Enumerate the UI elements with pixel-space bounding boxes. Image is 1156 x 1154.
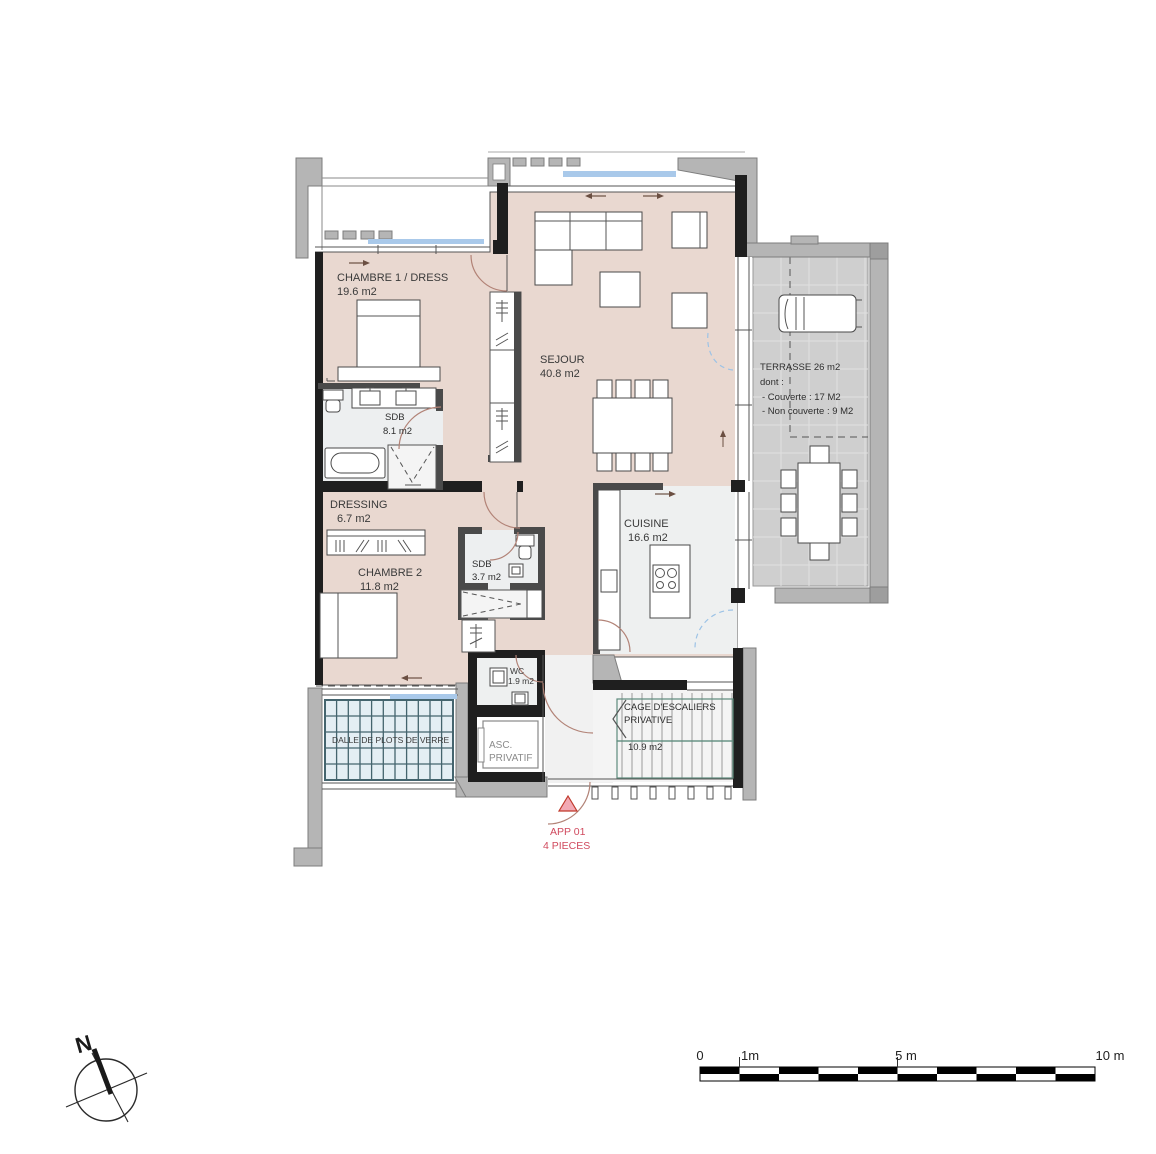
compass: N bbox=[66, 1030, 147, 1122]
cooktop bbox=[653, 565, 679, 592]
ascenseur-label-2: PRIVATIF bbox=[489, 753, 533, 764]
chambre1-glazing bbox=[368, 239, 484, 244]
balcony2-glazing bbox=[390, 694, 457, 699]
sejour-label: SEJOUR bbox=[540, 354, 585, 366]
compass-north-label: N bbox=[73, 1030, 95, 1058]
stair-wall-right bbox=[743, 648, 756, 800]
cage-area: 10.9 m2 bbox=[628, 742, 662, 753]
toilet-tank bbox=[516, 535, 534, 546]
dressing-label: DRESSING bbox=[330, 499, 387, 511]
chambre1-label: CHAMBRE 1 / DRESS bbox=[337, 272, 448, 284]
apartment-id: APP 01 bbox=[550, 826, 586, 838]
toilet-tank bbox=[323, 390, 343, 400]
toilet-bowl bbox=[326, 400, 340, 412]
floor-plan: APP 01 4 PIECES CHAMBRE 1 / DRESS 19.6 m… bbox=[0, 0, 1156, 1154]
scale-tick-0: 0 bbox=[696, 1048, 703, 1063]
cuisine-label: CUISINE bbox=[624, 518, 669, 530]
kitchen-island bbox=[650, 545, 690, 618]
terrasse-couverte: - Couverte : 17 M2 bbox=[762, 392, 841, 403]
balcony-pillar bbox=[296, 158, 322, 258]
chambre1-area: 19.6 m2 bbox=[337, 286, 377, 298]
cuisine-area: 16.6 m2 bbox=[628, 532, 668, 544]
wardrobe-strip bbox=[490, 292, 521, 462]
ascenseur-label-1: ASC. bbox=[489, 740, 512, 751]
chambre2-area: 11.8 m2 bbox=[360, 581, 399, 593]
scale-tick-1m: 1m bbox=[741, 1048, 759, 1063]
terrace-wall-right bbox=[870, 243, 888, 603]
tech-closet bbox=[462, 620, 495, 652]
toilet-bowl bbox=[519, 546, 531, 559]
elevator-door bbox=[478, 728, 484, 762]
apartment-type: 4 PIECES bbox=[543, 840, 590, 852]
shower-cabinet bbox=[527, 590, 542, 618]
stair-door-leaf bbox=[593, 655, 622, 683]
sdb1-area: 8.1 m2 bbox=[383, 426, 412, 437]
sofa-chaise bbox=[535, 250, 572, 285]
terrace bbox=[753, 257, 868, 586]
compass-needle-icon bbox=[94, 1049, 111, 1094]
entry-triangle-icon bbox=[559, 796, 577, 811]
bathtub-inner bbox=[331, 453, 379, 473]
sink-2 bbox=[396, 391, 416, 405]
scale-tick-5m: 5 m bbox=[895, 1048, 917, 1063]
floor-plan-svg: APP 01 4 PIECES CHAMBRE 1 / DRESS 19.6 m… bbox=[0, 0, 1156, 1154]
scale-bar: 0 1m 5 m 10 m bbox=[696, 1048, 1124, 1081]
terrasse-dont: dont : bbox=[760, 377, 784, 388]
armchair-1 bbox=[672, 212, 707, 248]
sdb2-area: 3.7 m2 bbox=[472, 572, 501, 583]
sink-1 bbox=[360, 391, 380, 405]
chambre2-bed bbox=[320, 593, 397, 658]
cage-label-2: PRIVATIVE bbox=[624, 715, 672, 726]
dalle-label: DALLE DE PLOTS DE VERRE bbox=[332, 735, 449, 745]
balcony2-wall-foot bbox=[294, 848, 322, 866]
dressing-area: 6.7 m2 bbox=[337, 513, 371, 525]
sdb2-label: SDB bbox=[472, 559, 492, 570]
coffee-table bbox=[600, 272, 640, 307]
terrace-wall-stub bbox=[791, 236, 818, 244]
armchair-2 bbox=[672, 293, 707, 328]
terrasse-label: TERRASSE 26 m2 bbox=[760, 362, 840, 373]
sejour-glazing bbox=[563, 171, 676, 177]
shower-2 bbox=[461, 590, 542, 618]
cage-label-1: CAGE D'ESCALIERS bbox=[624, 702, 716, 713]
scale-tick-10m: 10 m bbox=[1096, 1048, 1125, 1063]
wc-label: WC bbox=[510, 666, 524, 676]
kitchen-appliance bbox=[601, 570, 617, 592]
sejour-window-sill bbox=[508, 186, 737, 192]
sdb1-label: SDB bbox=[385, 412, 405, 423]
chambre2-label: CHAMBRE 2 bbox=[358, 567, 422, 579]
dresser bbox=[338, 367, 440, 381]
balcony2-wall-left bbox=[308, 688, 322, 848]
terrasse-non-couverte: - Non couverte : 9 M2 bbox=[762, 406, 853, 417]
shower bbox=[388, 445, 436, 489]
terrace-wall-top bbox=[746, 243, 888, 257]
wc-area: 1.9 m2 bbox=[508, 676, 534, 686]
lounge-chair bbox=[779, 295, 862, 332]
dressing-closet bbox=[327, 530, 425, 555]
sejour-area: 40.8 m2 bbox=[540, 368, 580, 380]
sofa bbox=[535, 212, 642, 250]
